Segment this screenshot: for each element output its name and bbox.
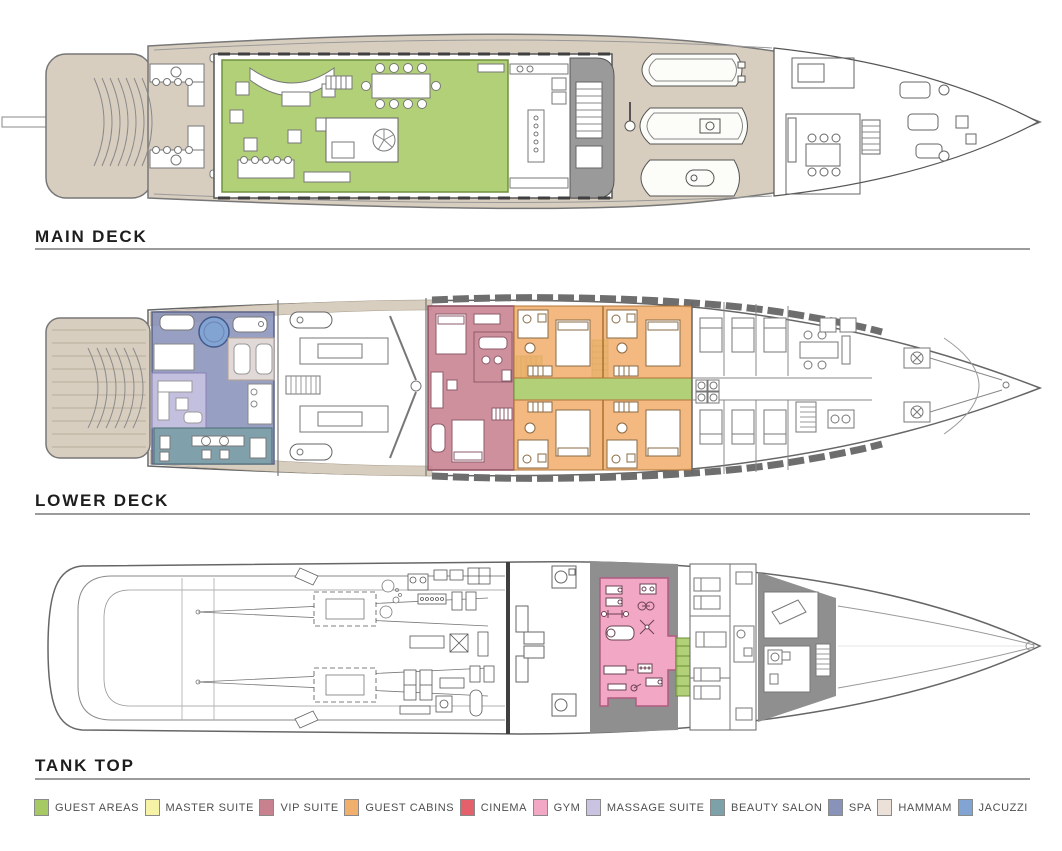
- legend-item-guest-cabins: GUEST CABINS: [344, 799, 454, 816]
- legend-label: VIP SUITE: [280, 802, 338, 814]
- beauty-salon-room: [154, 428, 272, 464]
- legend-item-massage-suite: MASSAGE SUITE: [586, 799, 705, 816]
- crew-cabins: [690, 564, 756, 730]
- legend-item-vip-suite: VIP SUITE: [259, 799, 338, 816]
- legend-item-beauty-salon: BEAUTY SALON: [710, 799, 822, 816]
- dining-table: [372, 74, 430, 98]
- legend-label: MASSAGE SUITE: [607, 802, 705, 814]
- passerelle: [2, 117, 48, 127]
- legend-swatch-beauty-salon: [710, 799, 725, 816]
- legend-item-jacuzzi: JACUZZI: [958, 799, 1028, 816]
- legend-label: GUEST AREAS: [55, 802, 139, 814]
- gym-zone: [600, 578, 676, 706]
- main-deck-plan: [0, 18, 1062, 214]
- legend-swatch-master-suite: [145, 799, 160, 816]
- legend-swatch-cinema: [460, 799, 475, 816]
- legend-label: MASTER SUITE: [166, 802, 255, 814]
- gym-stairs: [676, 638, 690, 696]
- spa-tub: [160, 315, 194, 330]
- lower-deck-divider: [35, 513, 1030, 515]
- legend-swatch-vip-suite: [259, 799, 274, 816]
- legend: GUEST AREAS MASTER SUITE VIP SUITE GUEST…: [0, 799, 1062, 816]
- deck-label-main-deck: MAIN DECK: [35, 227, 148, 247]
- legend-label: CINEMA: [481, 802, 527, 814]
- legend-label: HAMMAM: [898, 802, 952, 814]
- legend-swatch-gym: [533, 799, 548, 816]
- legend-item-cinema: CINEMA: [460, 799, 527, 816]
- hammam-room: [228, 338, 274, 380]
- legend-swatch-jacuzzi: [958, 799, 973, 816]
- deckhouse: [214, 54, 614, 198]
- legend-swatch-guest-cabins: [344, 799, 359, 816]
- legend-swatch-hammam: [877, 799, 892, 816]
- legend-swatch-spa: [828, 799, 843, 816]
- engine-room-bulkhead: [506, 562, 510, 734]
- tank-top-plan: [0, 548, 1062, 744]
- spa-complex: [152, 312, 274, 464]
- legend-label: SPA: [849, 802, 872, 814]
- bow-section: [774, 48, 1038, 196]
- legend-swatch-guest-areas: [34, 799, 49, 816]
- stair-lobby: [570, 58, 614, 198]
- massage-suite-room: [152, 373, 206, 428]
- legend-item-hammam: HAMMAM: [877, 799, 952, 816]
- tender-deck: [625, 54, 748, 196]
- forward-crew-area: [758, 572, 836, 722]
- legend-item-master-suite: MASTER SUITE: [145, 799, 255, 816]
- yacht-deck-plans-page: MAIN DECK: [0, 0, 1062, 851]
- tank-top-divider: [35, 778, 1030, 780]
- legend-item-gym: GYM: [533, 799, 581, 816]
- legend-label: GUEST CABINS: [365, 802, 454, 814]
- legend-label: BEAUTY SALON: [731, 802, 822, 814]
- vip-suite-zone: [428, 306, 514, 470]
- deck-label-lower-deck: LOWER DECK: [35, 491, 169, 511]
- legend-label: GYM: [554, 802, 581, 814]
- main-deck-divider: [35, 248, 1030, 250]
- lower-deck-plan: [0, 288, 1062, 484]
- legend-swatch-massage-suite: [586, 799, 601, 816]
- legend-item-guest-areas: GUEST AREAS: [34, 799, 139, 816]
- legend-item-spa: SPA: [828, 799, 872, 816]
- legend-label: JACUZZI: [979, 802, 1028, 814]
- deck-label-tank-top: TANK TOP: [35, 756, 135, 776]
